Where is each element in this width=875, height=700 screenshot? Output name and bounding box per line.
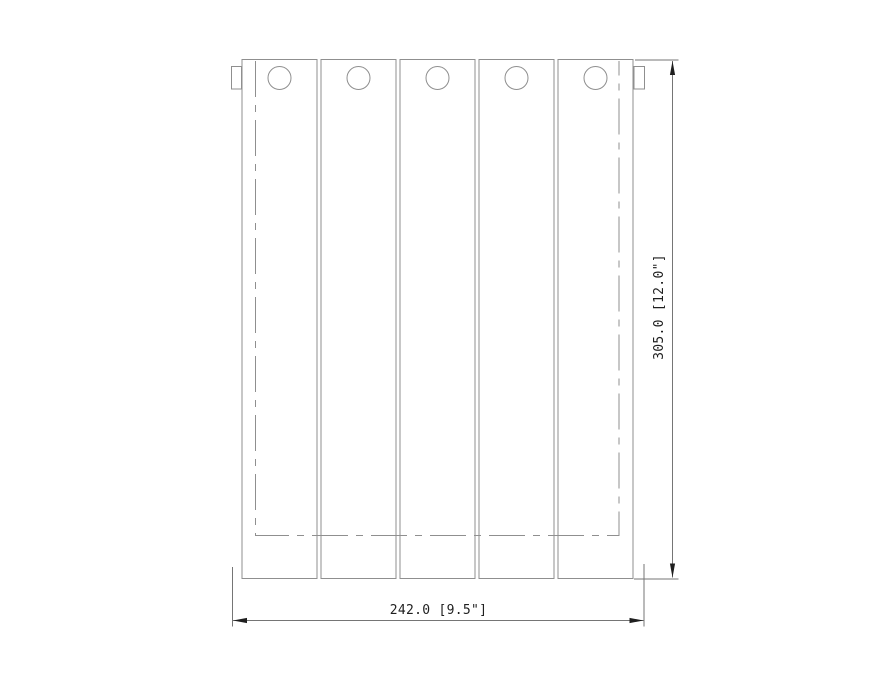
drawing-sheet: 242.0 [9.5"] 305.0 [12.0"] xyxy=(0,0,875,700)
right-hanger-tab xyxy=(634,67,645,90)
hole-cutout xyxy=(584,67,607,90)
hole-cutout xyxy=(426,67,449,90)
drawing-canvas: 242.0 [9.5"] 305.0 [12.0"] xyxy=(0,0,875,700)
height-arrow-top-icon xyxy=(670,61,675,75)
inner-liner-hidden-line xyxy=(256,61,620,536)
width-dimension: 242.0 [9.5"] xyxy=(233,564,645,627)
left-hanger-tab xyxy=(232,67,242,90)
width-dimension-label: 242.0 [9.5"] xyxy=(390,603,488,618)
height-dimension-label: 305.0 [12.0"] xyxy=(652,254,667,360)
panel-slat xyxy=(321,60,396,579)
panel-slat xyxy=(400,60,475,579)
hole-cutout xyxy=(505,67,528,90)
panel-slat xyxy=(558,60,633,579)
panel-slat xyxy=(242,60,317,579)
panel-slats xyxy=(242,60,633,579)
height-dimension: 305.0 [12.0"] xyxy=(634,60,679,579)
panel-slat xyxy=(479,60,554,579)
width-arrow-right-icon xyxy=(630,618,644,623)
hole-cutout xyxy=(268,67,291,90)
width-arrow-left-icon xyxy=(233,618,247,623)
height-arrow-bottom-icon xyxy=(670,564,675,578)
hole-cutout xyxy=(347,67,370,90)
